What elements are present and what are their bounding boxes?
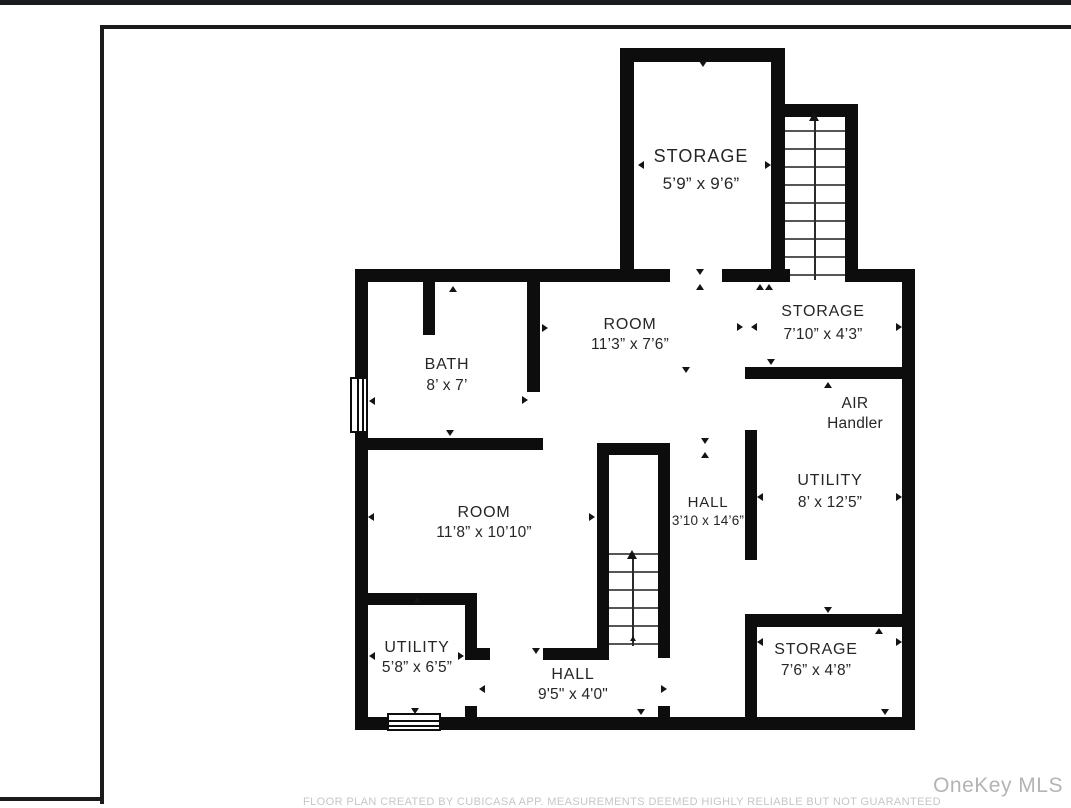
floor-plan-drawing — [0, 0, 1071, 804]
stair-up-arrow-icon — [809, 112, 819, 121]
door-arrow-icon — [896, 493, 902, 501]
wall-segment — [722, 269, 790, 282]
room-dimensions: 3’10 x 14’6” — [672, 513, 744, 528]
door-arrow-icon — [757, 493, 763, 501]
room-dimensions: 5’9” x 9’6” — [663, 174, 740, 194]
door-arrow-icon — [699, 61, 707, 67]
door-arrow-icon — [756, 284, 764, 290]
door-arrow-icon — [875, 628, 883, 634]
door-arrow-icon — [446, 430, 454, 436]
page-border-bottom-tick — [0, 797, 104, 801]
room-label-storage-right: STORAGE 7’10” x 4’3” — [781, 303, 865, 344]
room-label-room-left: ROOM 11’8” x 10’10” — [436, 504, 532, 542]
page-border-vertical — [100, 25, 104, 804]
room-dimensions: 5’8” x 6’5” — [382, 659, 452, 677]
room-dimensions: 11’3” x 7’6” — [591, 336, 669, 354]
window-pane-line — [389, 725, 439, 727]
door-arrow-icon — [661, 685, 667, 693]
door-arrow-icon — [757, 638, 763, 646]
door-arrow-icon — [751, 323, 757, 331]
wall-segment — [771, 48, 785, 282]
door-arrow-icon — [638, 161, 644, 169]
stair-direction-line — [632, 558, 634, 646]
wall-segment — [355, 269, 670, 282]
room-dimensions: 8’ x 7’ — [426, 377, 467, 395]
window-symbol — [387, 713, 441, 731]
door-arrow-icon — [696, 269, 704, 275]
room-label-utility-left: UTILITY 5’8” x 6’5” — [382, 639, 452, 677]
door-arrow-icon — [413, 597, 421, 603]
wall-segment — [658, 443, 670, 658]
door-arrow-icon — [542, 324, 548, 332]
room-label-storage-bottom: STORAGE 7’6” x 4’8” — [774, 641, 858, 680]
room-label-storage-top: STORAGE 5’9” x 9’6” — [654, 146, 749, 194]
floor-plan-page: STORAGE 5’9” x 9’6” ROOM 11’3” x 7’6” ST… — [0, 0, 1071, 804]
wall-segment — [620, 48, 785, 62]
door-arrow-icon — [824, 607, 832, 613]
room-name: STORAGE — [781, 303, 865, 321]
page-border-horizontal — [100, 25, 1071, 29]
room-label-hall-bottom: HALL 9'5" x 4'0" — [538, 666, 608, 704]
room-name: STORAGE — [654, 146, 749, 167]
footer-disclaimer: FLOOR PLAN CREATED BY CUBICASA APP. MEAS… — [303, 796, 941, 808]
door-arrow-icon — [682, 367, 690, 373]
wall-segment — [465, 593, 477, 660]
door-arrow-icon — [767, 359, 775, 365]
door-arrow-icon — [765, 161, 771, 169]
stair-up-arrow-icon — [627, 550, 637, 559]
door-arrow-icon — [589, 513, 595, 521]
wall-segment — [465, 706, 477, 718]
room-dimensions: 11’8” x 10’10” — [436, 524, 532, 542]
room-name: UTILITY — [797, 472, 862, 490]
wall-segment — [355, 269, 368, 730]
room-name: HALL — [551, 666, 594, 684]
window-pane-line — [389, 720, 439, 722]
room-label-hall-vertical: HALL 3’10 x 14’6” — [672, 494, 744, 528]
room-name: STORAGE — [774, 641, 858, 659]
wall-segment — [745, 367, 915, 379]
door-arrow-icon — [369, 397, 375, 405]
room-label-utility-right: UTILITY 8’ x 12’5” — [797, 472, 862, 512]
stair-direction-line — [814, 120, 816, 280]
wall-segment — [355, 438, 543, 450]
room-name: BATH — [425, 356, 470, 374]
room-dimensions: 7’10” x 4’3” — [783, 326, 862, 344]
wall-segment — [745, 614, 907, 627]
room-dimensions: 9'5" x 4'0" — [538, 686, 608, 704]
wall-segment — [745, 430, 757, 560]
wall-segment — [620, 48, 634, 270]
room-label-air-handler: AIR Handler — [827, 395, 883, 433]
door-arrow-icon — [701, 438, 709, 444]
wall-segment — [745, 614, 757, 717]
wall-segment — [902, 269, 915, 730]
door-arrow-icon — [737, 323, 743, 331]
door-arrow-icon — [637, 709, 645, 715]
room-name: UTILITY — [384, 639, 449, 657]
door-arrow-icon — [369, 652, 375, 660]
room-name: ROOM — [604, 316, 657, 334]
room-name: ROOM — [458, 504, 511, 522]
mls-watermark: OneKey MLS — [933, 774, 1063, 798]
door-arrow-icon — [701, 452, 709, 458]
door-arrow-icon — [522, 396, 528, 404]
wall-segment — [845, 104, 858, 282]
room-name: HALL — [688, 494, 729, 511]
room-dimensions: 7’6” x 4’8” — [781, 662, 851, 680]
wall-segment — [658, 706, 670, 718]
window-pane-line — [357, 379, 359, 431]
door-arrow-icon — [824, 382, 832, 388]
wall-segment — [423, 282, 435, 335]
wall-segment — [597, 443, 609, 650]
window-symbol — [350, 377, 368, 433]
door-arrow-icon — [449, 286, 457, 292]
stair-arrow-tail — [630, 636, 636, 641]
door-arrow-icon — [896, 638, 902, 646]
room-name: AIR — [841, 395, 868, 413]
page-top-strip — [0, 0, 1071, 5]
door-arrow-icon — [765, 284, 773, 290]
room-label-bath: BATH 8’ x 7’ — [425, 356, 470, 395]
wall-segment — [527, 282, 540, 392]
room-dimensions: 8’ x 12’5” — [798, 494, 862, 512]
room-label-room-center: ROOM 11’3” x 7’6” — [591, 316, 669, 354]
window-pane-line — [362, 379, 364, 431]
door-arrow-icon — [896, 323, 902, 331]
room-dimensions: Handler — [827, 415, 883, 433]
door-arrow-icon — [479, 685, 485, 693]
door-arrow-icon — [368, 513, 374, 521]
door-arrow-icon — [458, 652, 464, 660]
wall-segment — [543, 648, 609, 660]
door-arrow-icon — [881, 709, 889, 715]
door-arrow-icon — [532, 648, 540, 654]
door-arrow-icon — [696, 284, 704, 290]
